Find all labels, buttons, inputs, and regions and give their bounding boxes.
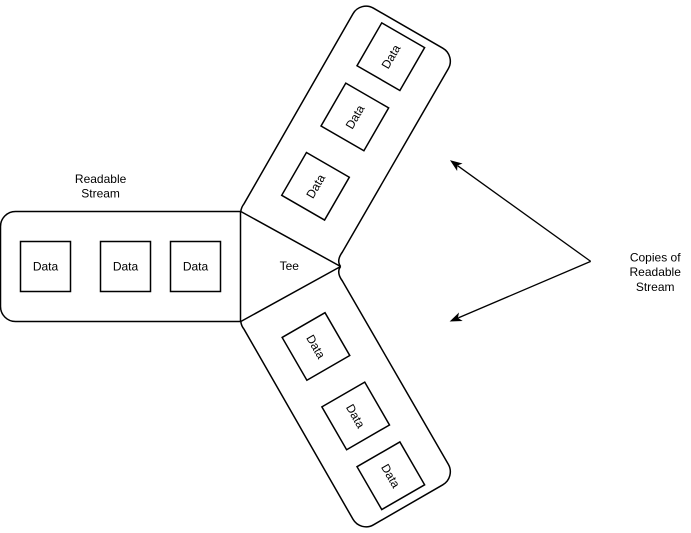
svg-text:Data: Data (33, 260, 59, 274)
svg-text:Readable: Readable (630, 265, 682, 279)
svg-text:Tee: Tee (280, 259, 300, 273)
svg-text:Data: Data (183, 260, 209, 274)
svg-text:Stream: Stream (81, 187, 120, 201)
svg-text:Stream: Stream (636, 280, 675, 294)
svg-text:Copies of: Copies of (630, 251, 681, 265)
svg-text:Data: Data (113, 260, 139, 274)
svg-text:Readable: Readable (75, 172, 127, 186)
